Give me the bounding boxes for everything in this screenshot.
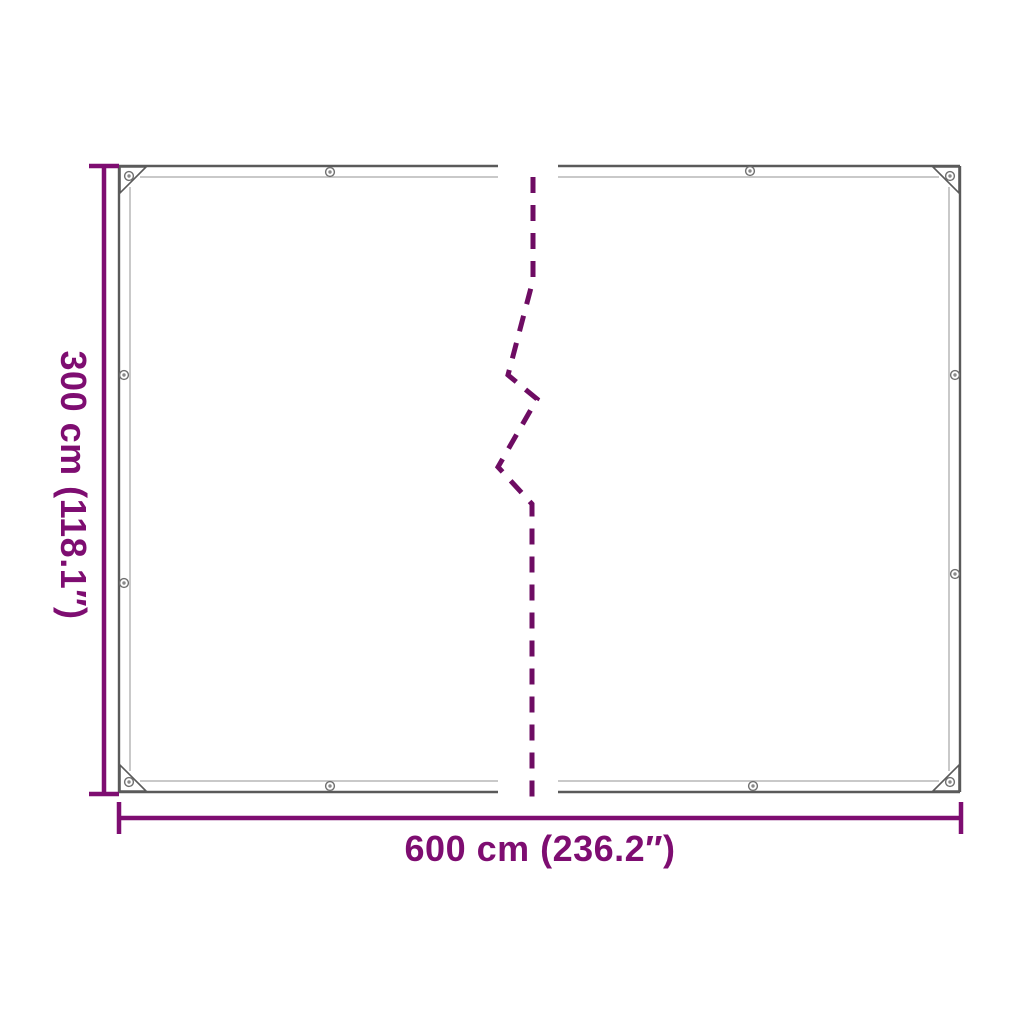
tarp-hem bbox=[130, 177, 949, 781]
width-dimension-label: 600 cm (236.2″) bbox=[119, 829, 961, 869]
diagram-canvas bbox=[0, 0, 1024, 1024]
corner-patch bbox=[120, 765, 146, 791]
corner-patch bbox=[933, 167, 959, 193]
grommet-icon bbox=[946, 172, 955, 181]
grommets bbox=[120, 167, 960, 791]
grommet-icon bbox=[125, 172, 134, 181]
grommet-icon bbox=[125, 778, 134, 787]
grommet-icon bbox=[746, 167, 755, 176]
grommet-icon bbox=[326, 782, 335, 791]
dimension-lines bbox=[89, 166, 961, 834]
corner-patch bbox=[933, 765, 959, 791]
height-dimension-label: 300 cm (118.1″) bbox=[53, 285, 93, 685]
grommet-icon bbox=[951, 371, 960, 380]
grommet-icon bbox=[120, 579, 129, 588]
grommet-icon bbox=[326, 168, 335, 177]
grommet-icon bbox=[120, 371, 129, 380]
grommet-icon bbox=[951, 570, 960, 579]
corner-patch bbox=[120, 167, 146, 193]
break-line bbox=[498, 177, 537, 802]
grommet-icon bbox=[946, 778, 955, 787]
product-dimension-diagram: 300 cm (118.1″) 600 cm (236.2″) bbox=[0, 0, 1024, 1024]
grommet-icon bbox=[749, 782, 758, 791]
tarp-outline bbox=[119, 166, 960, 792]
